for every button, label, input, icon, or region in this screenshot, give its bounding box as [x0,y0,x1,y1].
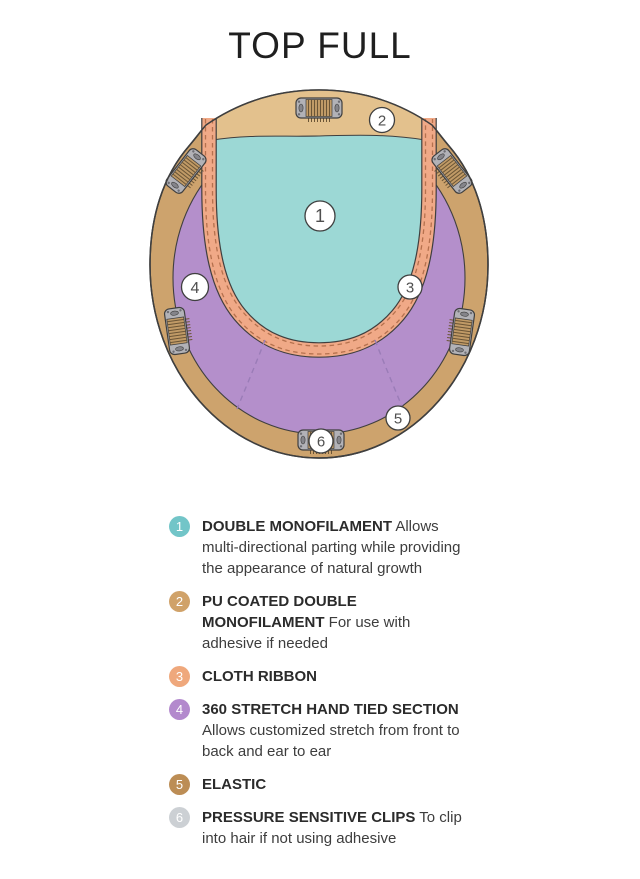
legend-badge-number: 1 [176,520,183,533]
legend-badge-2: 2 [169,591,190,612]
legend-item-label: PRESSURE SENSITIVE CLIPS [202,809,415,826]
legend-item-text: CLOTH RIBBON [202,666,469,687]
legend-item-text: PU COATED DOUBLE MONOFILAMENT For use wi… [202,591,469,654]
callout-3: 3 [398,275,422,299]
legend-item-cloth-ribbon: 3 CLOTH RIBBON [169,666,469,687]
callout-2: 2 [370,107,395,132]
callout-6: 6 [309,429,333,453]
legend-badge-number: 5 [176,778,183,791]
legend-item-label: ELASTIC [202,776,266,793]
legend-item-double-monofilament: 1 DOUBLE MONOFILAMENT Allows multi-direc… [169,516,469,579]
legend-badge-6: 6 [169,807,190,828]
legend-badge-3: 3 [169,666,190,687]
svg-text:1: 1 [315,206,325,226]
legend-badge-number: 2 [176,595,183,608]
legend-badge-1: 1 [169,516,190,537]
legend-item-label: CLOTH RIBBON [202,668,317,685]
legend-item-text: 360 STRETCH HAND TIED SECTION Allows cus… [202,699,469,762]
cap-construction-diagram: 1 2 3 4 5 6 [144,67,496,467]
callout-4: 4 [182,273,209,300]
legend-badge-number: 6 [176,811,183,824]
legend-item-pu-coated: 2 PU COATED DOUBLE MONOFILAMENT For use … [169,591,469,654]
pressure-clip-icon-top [296,98,342,122]
svg-text:5: 5 [394,410,402,427]
legend-item-elastic: 5 ELASTIC [169,774,469,795]
legend-item-text: DOUBLE MONOFILAMENT Allows multi-directi… [202,516,469,579]
legend-item-text: PRESSURE SENSITIVE CLIPS To clip into ha… [202,807,469,849]
legend-item-pressure-clips: 6 PRESSURE SENSITIVE CLIPS To clip into … [169,807,469,849]
legend-badge-number: 3 [176,670,183,683]
callout-5: 5 [386,406,410,430]
svg-text:2: 2 [378,112,386,129]
legend-item-text: ELASTIC [202,774,469,795]
callout-1: 1 [305,201,335,231]
legend-item-description: Allows customized stretch from front to … [202,722,460,760]
legend-badge-5: 5 [169,774,190,795]
legend-badge-number: 4 [176,703,183,716]
page-title: TOP FULL [0,26,640,67]
cap-diagram-container: 1 2 3 4 5 6 [144,67,496,472]
svg-text:6: 6 [317,433,325,450]
legend-item-label: 360 STRETCH HAND TIED SECTION [202,701,459,718]
svg-text:4: 4 [191,280,200,297]
legend-item-label: DOUBLE MONOFILAMENT [202,518,392,535]
legend-badge-4: 4 [169,699,190,720]
legend-item-hand-tied: 4 360 STRETCH HAND TIED SECTION Allows c… [169,699,469,762]
svg-text:3: 3 [406,279,414,296]
legend: 1 DOUBLE MONOFILAMENT Allows multi-direc… [169,516,469,849]
